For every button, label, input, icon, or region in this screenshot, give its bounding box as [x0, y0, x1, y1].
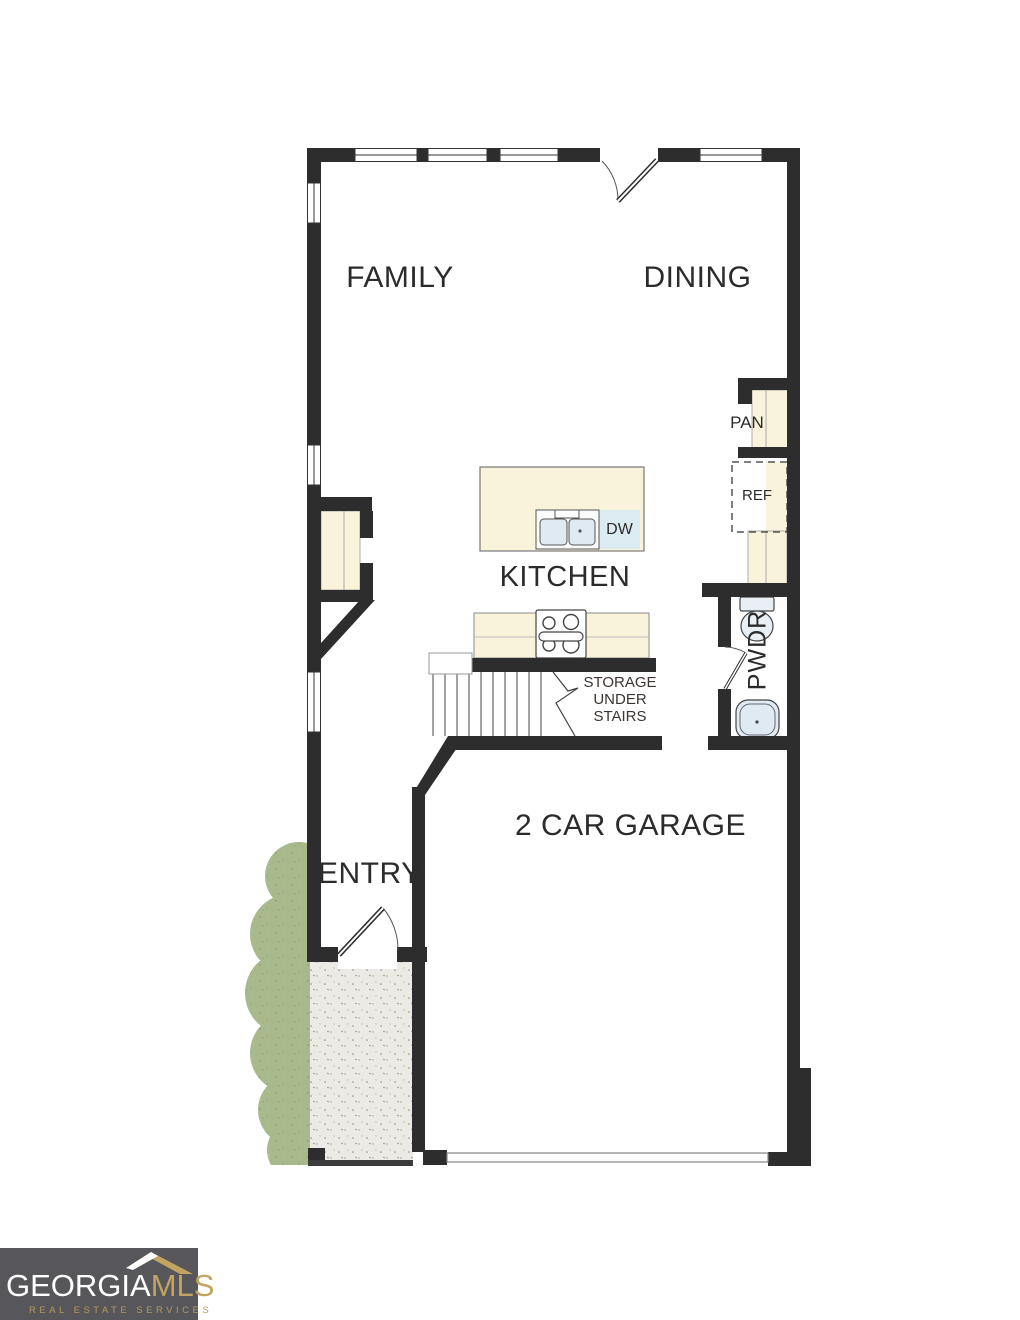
window-top-4: [700, 149, 762, 162]
window-left-2: [308, 445, 321, 485]
wall-diagonal-stair: [412, 736, 465, 795]
powder-sink-drain: [755, 720, 758, 723]
wall-right-stub: [800, 1068, 811, 1166]
family-niche-cabinet: [321, 511, 360, 590]
burner: [543, 617, 555, 629]
georgia-mls-logo: GEORGIAMLS REAL ESTATE SERVICES: [0, 1248, 198, 1320]
logo-tagline: REAL ESTATE SERVICES: [29, 1305, 212, 1316]
label-pantry: PAN: [727, 413, 767, 433]
wall-pantry-stub: [738, 378, 752, 404]
wall-niche-stub-top: [360, 511, 373, 538]
logo-wordmark: GEORGIAMLS: [6, 1268, 214, 1304]
porch-edge-line: [308, 1160, 413, 1166]
room-label-entry: ENTRY: [318, 857, 420, 891]
rear-door-swing: [602, 161, 618, 201]
storage-line-1: STORAGE: [573, 674, 667, 691]
wall-garage-corner: [423, 1150, 447, 1165]
label-storage-under-stairs: STORAGE UNDER STAIRS: [573, 674, 667, 725]
window-left-1: [308, 183, 321, 223]
wall-stair-bottom: [448, 736, 662, 750]
room-label-garage: 2 CAR GARAGE: [513, 809, 748, 843]
rear-door-opening: [600, 145, 658, 164]
floorplan-drawing: [0, 0, 1020, 1320]
wall-powder-top: [702, 583, 800, 597]
rear-door-leaf-inner: [618, 160, 657, 201]
wall-bottom-right: [768, 1152, 811, 1166]
storage-line-2: UNDER: [573, 691, 667, 708]
stair-treads: [433, 672, 541, 736]
garage-door: [447, 1153, 768, 1162]
wall-stair-top: [470, 658, 656, 672]
wall-powder-left-b: [718, 689, 731, 736]
wall-diagonal-niche: [321, 600, 375, 659]
sink-faucet: [555, 510, 579, 518]
wall-exterior-left: [307, 162, 321, 962]
burner: [564, 615, 579, 630]
label-dishwasher: DW: [599, 521, 640, 539]
wall-pantry-bottom: [738, 447, 788, 458]
storage-line-3: STAIRS: [573, 708, 667, 725]
logo-brand-accent: MLS: [151, 1268, 215, 1303]
entry-door-swing: [383, 908, 398, 950]
wall-niche-stub-bottom: [360, 563, 373, 591]
room-label-kitchen: KITCHEN: [495, 561, 635, 594]
room-label-powder: PWDR: [744, 610, 773, 690]
window-top-1: [355, 149, 417, 162]
wall-niche-top: [318, 497, 372, 511]
porch-slab: [310, 958, 413, 1162]
window-top-2: [428, 149, 487, 162]
sink-drain: [578, 529, 581, 532]
powder-sink: [736, 700, 779, 739]
sink-basin-right: [569, 519, 595, 545]
kitchen-wall-counter: [748, 531, 787, 588]
room-label-dining: DINING: [635, 261, 760, 295]
wall-powder-left-a: [718, 597, 731, 647]
wall-entry-right: [397, 947, 427, 962]
stove-divider: [539, 632, 583, 641]
floorplan-page: FAMILY DINING KITCHEN 2 CAR GARAGE ENTRY…: [0, 0, 1020, 1320]
wall-garage-left: [412, 787, 425, 1152]
label-refrigerator: REF: [734, 487, 780, 504]
window-left-3: [308, 672, 321, 732]
entry-door-opening: [338, 947, 397, 969]
wall-powder-bottom: [708, 736, 793, 750]
sink-basin-left: [540, 519, 567, 545]
room-label-family: FAMILY: [340, 261, 460, 295]
wall-exterior-right: [787, 148, 800, 1166]
window-top-3: [500, 149, 558, 162]
wall-entry-left: [308, 947, 338, 962]
stair-landing: [429, 653, 472, 674]
logo-brand: GEORGIA: [6, 1268, 151, 1303]
